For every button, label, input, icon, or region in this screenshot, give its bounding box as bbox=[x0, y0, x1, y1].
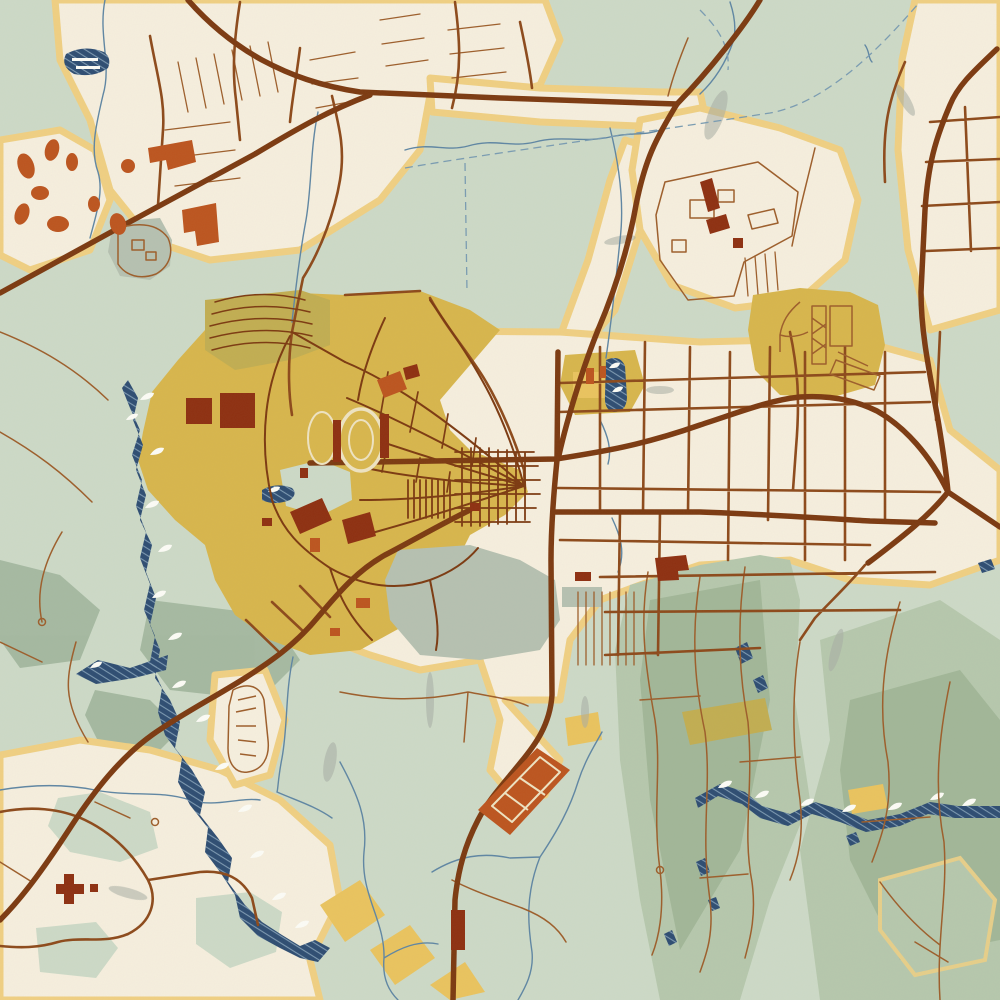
map-canvas bbox=[0, 0, 1000, 1000]
paper-grain bbox=[0, 0, 1000, 1000]
map-root bbox=[0, 0, 1000, 1000]
